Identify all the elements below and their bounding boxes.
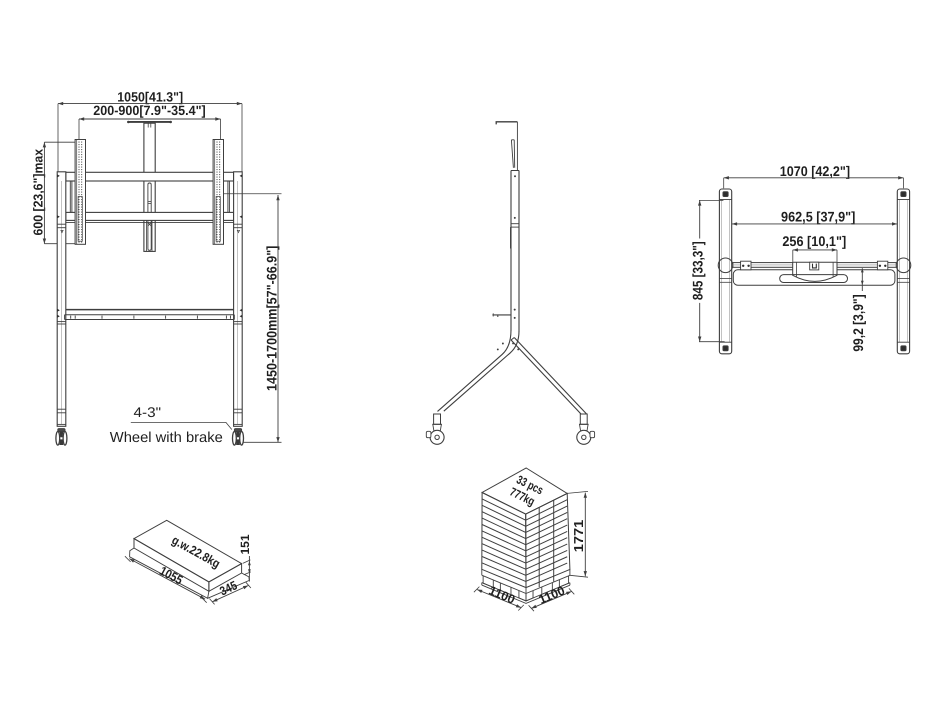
svg-text:1070 [42,2"]: 1070 [42,2"] — [780, 163, 850, 179]
svg-text:4-3": 4-3" — [134, 404, 162, 420]
svg-text:600 [23,6"]max: 600 [23,6"]max — [31, 148, 46, 235]
svg-text:1771: 1771 — [571, 520, 586, 553]
svg-text:256 [10,1"]: 256 [10,1"] — [782, 233, 846, 249]
svg-text:151: 151 — [238, 534, 252, 554]
svg-text:Wheel with brake: Wheel with brake — [110, 430, 223, 446]
svg-text:962,5 [37,9"]: 962,5 [37,9"] — [781, 209, 855, 225]
svg-text:200-900[7.9"-35.4"]: 200-900[7.9"-35.4"] — [93, 103, 205, 118]
svg-text:99,2 [3,9"]: 99,2 [3,9"] — [850, 294, 866, 351]
svg-text:845 [33,3"]: 845 [33,3"] — [690, 241, 706, 300]
svg-text:1450-1700mm[57"-66.9"]: 1450-1700mm[57"-66.9"] — [264, 246, 280, 391]
